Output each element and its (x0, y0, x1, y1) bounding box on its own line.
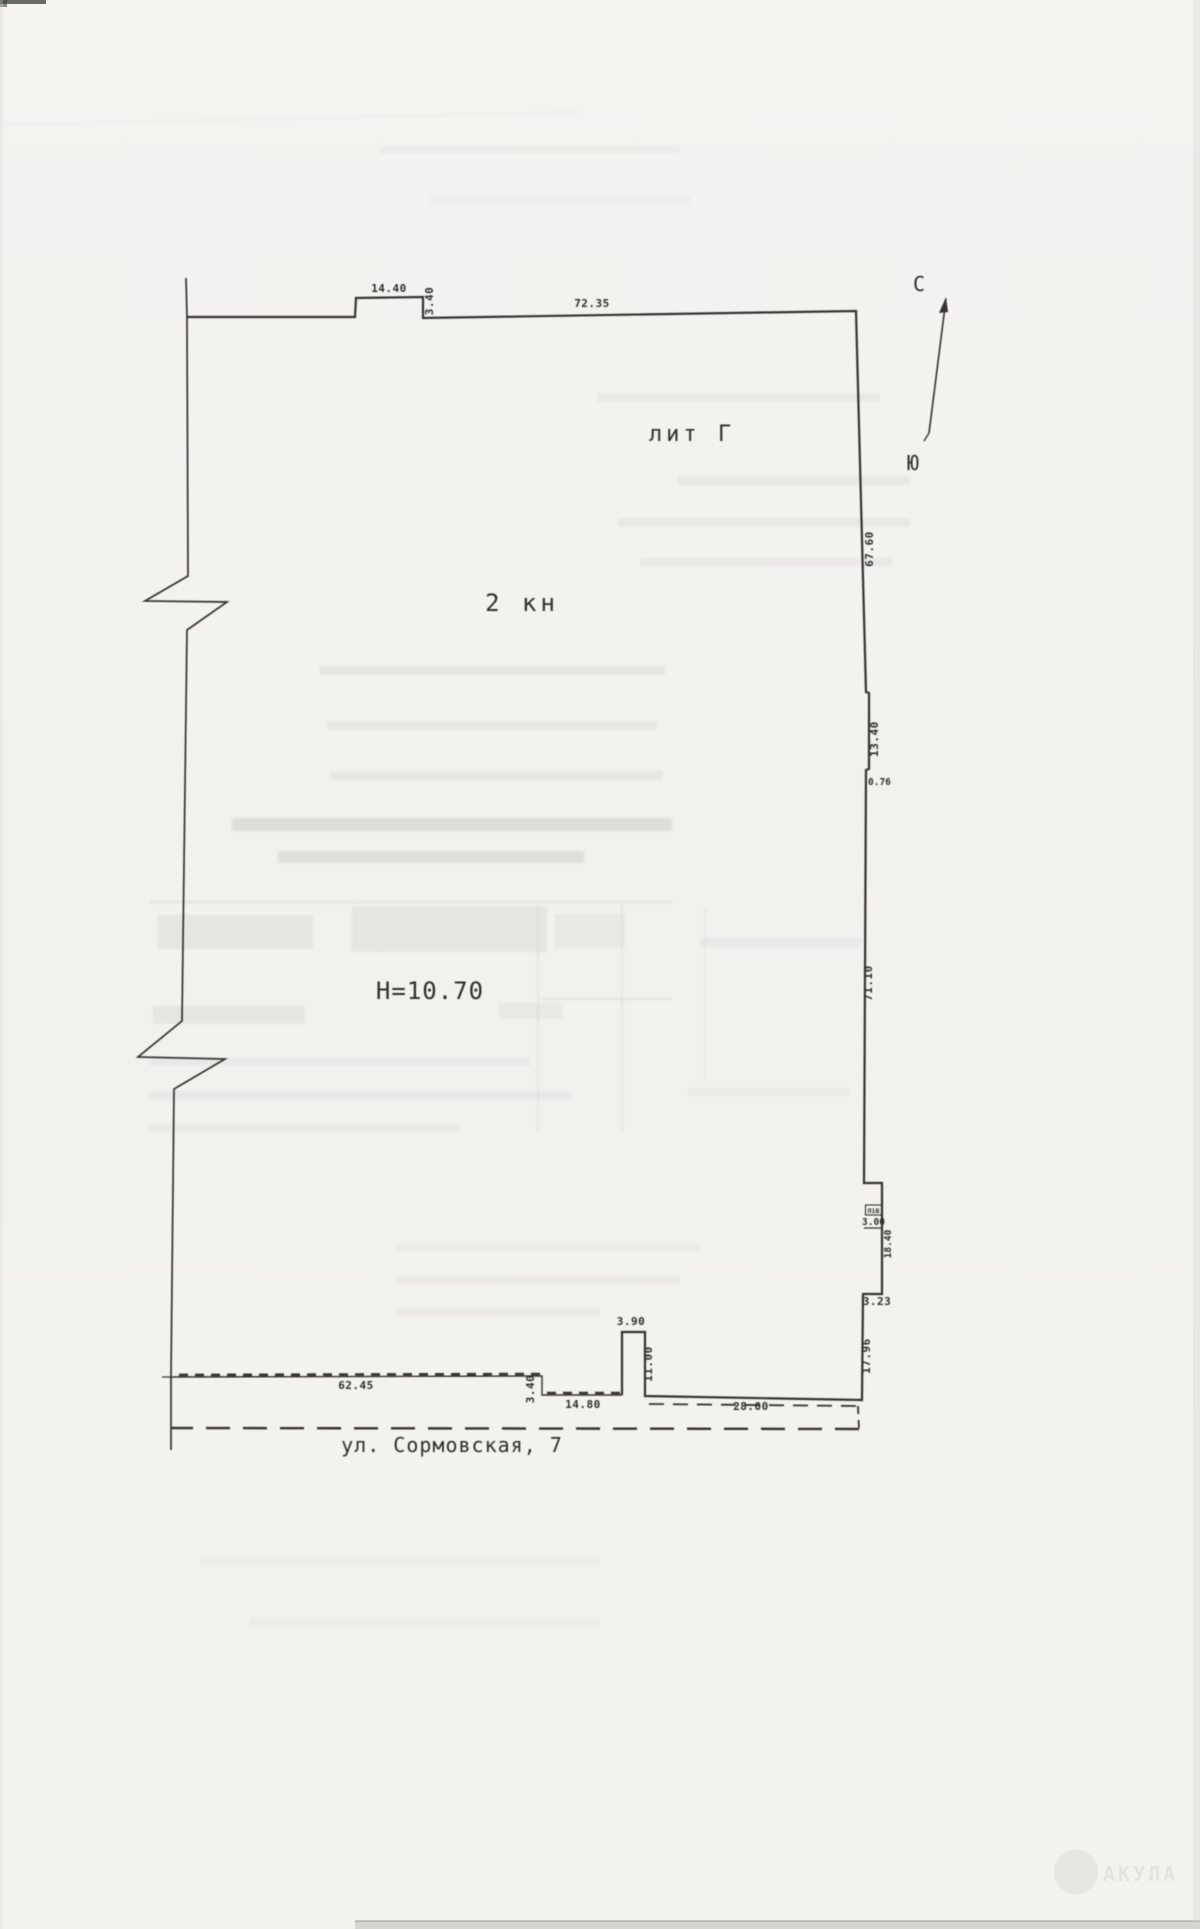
dim-top-main: 72.35 (574, 297, 610, 310)
compass-fletch (924, 433, 929, 441)
dim-south-step: 3.40 (524, 1375, 537, 1404)
dim-east-below-niche: 3.23 (863, 1295, 892, 1308)
compass-arrow-line (929, 299, 946, 433)
compass: С Ю (907, 272, 948, 475)
dim-east-step: 0.76 (868, 777, 891, 788)
unit-label: 2 кн (485, 589, 559, 617)
dim-top-offset-depth: 3.40 (423, 287, 436, 316)
street-address-label: ул. Сормовская, 7 (341, 1433, 563, 1457)
dim-top-offset-width: 14.40 (371, 282, 407, 295)
watermark-text: АКУЛА (1103, 1862, 1178, 1886)
dashed-corner-line (858, 1406, 859, 1429)
dim-east-upper: 67.60 (863, 531, 876, 567)
compass-south-label: Ю (907, 451, 919, 475)
dim-east-recess: 13.40 (868, 721, 881, 757)
scanned-site-plan-page: С Ю 14.40 3.40 72.35 67.60 13.40 0.76 71… (0, 0, 1200, 1929)
west-boundary-line (138, 278, 227, 1450)
scan-edge-artifacts (0, 0, 1200, 1929)
watermark: АКУЛА (1055, 1851, 1178, 1893)
dim-south-mid: 14.80 (565, 1398, 601, 1411)
building-letter-label: лит Г (649, 422, 735, 447)
dim-east-lower: 17.96 (860, 1338, 873, 1374)
dim-south-dashed: 28.00 (733, 1400, 769, 1413)
building-outline (187, 297, 882, 1400)
dim-stub-height: 11.00 (642, 1346, 655, 1382)
dim-niche-width: 3.00 (862, 1217, 885, 1228)
site-plan-drawing: С Ю 14.40 3.40 72.35 67.60 13.40 0.76 71… (0, 0, 1200, 1929)
niche-label: П1В (868, 1207, 880, 1215)
compass-north-label: С (913, 272, 925, 296)
dim-south-main: 62.45 (338, 1379, 374, 1392)
dim-east-main: 71.10 (862, 965, 875, 1001)
height-label: Н=10.70 (376, 977, 484, 1005)
dim-niche-length: 18.40 (883, 1229, 894, 1258)
dim-stub-width: 3.90 (617, 1315, 646, 1328)
street-boundary-dashed-line (171, 1428, 859, 1429)
